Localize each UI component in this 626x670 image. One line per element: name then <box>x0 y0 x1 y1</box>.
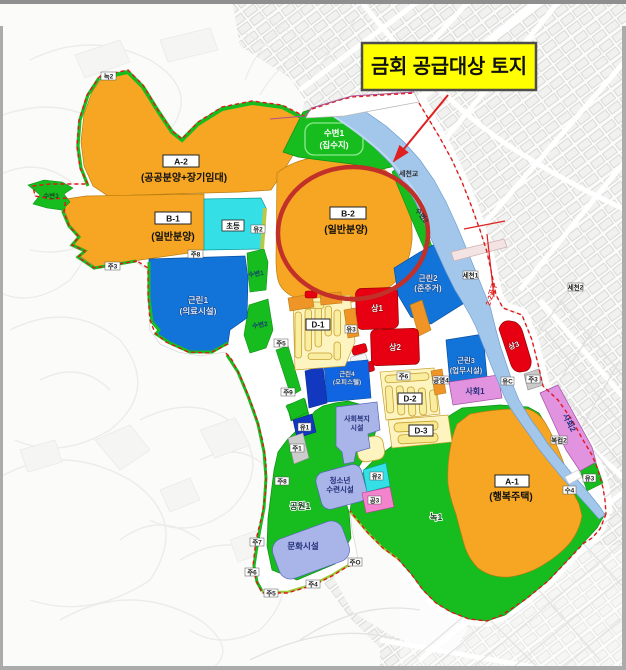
svg-text:(의료시설): (의료시설) <box>180 306 217 316</box>
svg-text:공영4: 공영4 <box>433 376 449 385</box>
svg-text:녹2: 녹2 <box>104 72 114 81</box>
svg-text:(공공분양+장기임대): (공공분양+장기임대) <box>141 171 227 184</box>
svg-text:공원1: 공원1 <box>290 501 311 511</box>
svg-text:(업무시설): (업무시설) <box>450 365 483 375</box>
svg-text:주5: 주5 <box>276 340 286 348</box>
svg-text:주3: 주3 <box>108 263 118 271</box>
svg-text:주4: 주4 <box>308 581 318 589</box>
svg-text:A-1: A-1 <box>505 477 519 487</box>
svg-text:(행복주택): (행복주택) <box>489 490 532 503</box>
svg-text:금회 공급대상 토지: 금회 공급대상 토지 <box>371 55 527 78</box>
svg-text:(오피스텔): (오피스텔) <box>333 377 361 386</box>
svg-text:A-2: A-2 <box>174 157 188 167</box>
svg-text:사회복지: 사회복지 <box>344 414 370 423</box>
svg-text:유1: 유1 <box>300 423 310 432</box>
svg-text:(준주거): (준주거) <box>414 283 442 293</box>
svg-text:주6: 주6 <box>247 569 257 577</box>
svg-text:주6: 주6 <box>399 373 409 381</box>
svg-text:주O: 주O <box>349 559 360 567</box>
svg-text:유2: 유2 <box>372 472 382 481</box>
svg-text:근린2: 근린2 <box>418 273 438 283</box>
svg-text:수변3: 수변3 <box>43 191 59 200</box>
svg-text:공3: 공3 <box>370 497 380 505</box>
svg-text:수변1: 수변1 <box>324 128 345 138</box>
svg-text:상1: 상1 <box>371 303 383 313</box>
svg-text:(일반분양): (일반분양) <box>324 223 367 236</box>
svg-text:근린3: 근린3 <box>457 355 475 365</box>
svg-text:(집수지): (집수지) <box>319 140 348 150</box>
svg-text:주8: 주8 <box>191 251 201 259</box>
svg-text:사회1: 사회1 <box>465 386 485 396</box>
svg-text:수련시설: 수련시설 <box>326 484 354 494</box>
svg-text:B-2: B-2 <box>341 209 355 219</box>
svg-text:D-2: D-2 <box>404 395 417 404</box>
svg-text:D-3: D-3 <box>415 427 428 436</box>
svg-text:상2: 상2 <box>389 342 401 352</box>
svg-text:세천교: 세천교 <box>399 169 419 178</box>
svg-text:(일반분양): (일반분양) <box>151 230 194 243</box>
svg-text:B-1: B-1 <box>166 214 180 224</box>
svg-text:수4: 수4 <box>565 487 575 495</box>
svg-text:주3: 주3 <box>528 376 538 384</box>
svg-text:문화시설: 문화시설 <box>287 541 318 551</box>
svg-text:청소년: 청소년 <box>330 475 351 485</box>
svg-text:주1: 주1 <box>292 445 302 453</box>
svg-text:유3: 유3 <box>346 325 356 334</box>
svg-text:유C: 유C <box>502 377 513 386</box>
svg-text:주8: 주8 <box>277 478 287 486</box>
svg-text:D-1: D-1 <box>312 321 325 330</box>
svg-text:주7: 주7 <box>252 539 262 547</box>
svg-text:근린1: 근린1 <box>188 295 209 305</box>
svg-text:초등: 초등 <box>226 222 240 231</box>
svg-text:유2: 유2 <box>253 225 263 234</box>
svg-text:주9: 주9 <box>283 389 293 397</box>
svg-text:세천2: 세천2 <box>568 283 584 292</box>
svg-text:세천1: 세천1 <box>463 271 479 280</box>
svg-text:복컴2: 복컴2 <box>551 436 567 445</box>
svg-text:시설: 시설 <box>351 423 364 432</box>
svg-text:주5: 주5 <box>266 590 276 598</box>
svg-text:녹1: 녹1 <box>430 512 443 522</box>
svg-text:유3: 유3 <box>585 474 595 483</box>
svg-text:근린4: 근린4 <box>339 369 355 378</box>
